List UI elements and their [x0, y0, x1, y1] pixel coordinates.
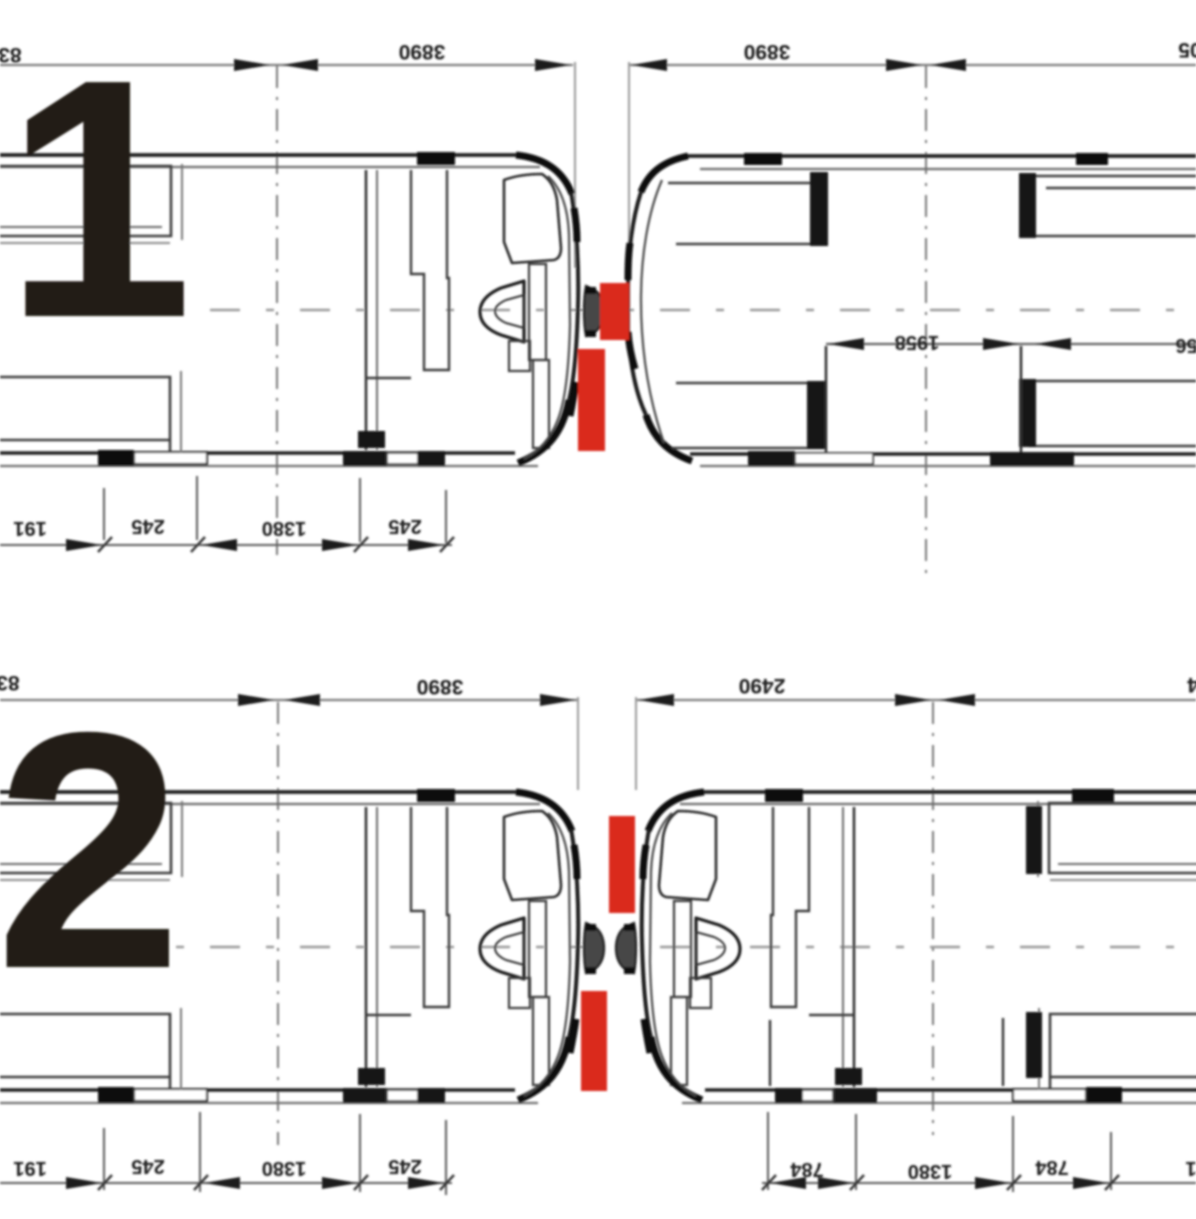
- svg-text:3890: 3890: [744, 40, 791, 63]
- svg-text:2: 2: [0, 663, 182, 1039]
- svg-text:1: 1: [1185, 1157, 1196, 1179]
- svg-text:191: 191: [13, 517, 46, 539]
- svg-text:784: 784: [789, 1158, 823, 1180]
- svg-text:245: 245: [131, 515, 164, 537]
- svg-text:05: 05: [1178, 38, 1196, 61]
- svg-text:3890: 3890: [417, 675, 464, 698]
- svg-text:1: 1: [4, 9, 193, 389]
- svg-text:1380: 1380: [262, 517, 307, 539]
- svg-text:245: 245: [131, 1155, 164, 1177]
- svg-text:056: 056: [1175, 334, 1196, 356]
- svg-text:245: 245: [388, 515, 421, 537]
- svg-text:1380: 1380: [908, 1160, 953, 1182]
- svg-text:2490: 2490: [739, 674, 786, 697]
- svg-text:3890: 3890: [399, 40, 446, 63]
- svg-text:245: 245: [388, 1155, 421, 1177]
- svg-text:784: 784: [1034, 1156, 1068, 1178]
- svg-text:1380: 1380: [262, 1157, 307, 1179]
- svg-text:191: 191: [13, 1157, 46, 1179]
- svg-text:1958: 1958: [895, 331, 940, 353]
- svg-text:4: 4: [1187, 673, 1196, 696]
